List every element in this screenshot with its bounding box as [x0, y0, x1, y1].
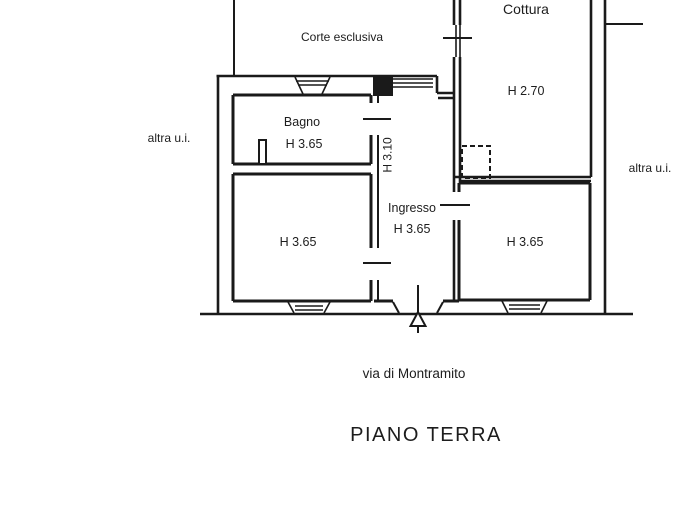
wall-pier	[373, 76, 393, 96]
room-label-bagno: Bagno	[272, 116, 332, 130]
outdoor-label-corte-esclusiva: Corte esclusiva	[301, 31, 381, 44]
street-label: via di Montramito	[344, 367, 484, 382]
room-cottura-walls	[454, 0, 591, 301]
boundary-lines	[234, 0, 643, 76]
scanned-floorplan-page: { "page": { "background": "#ffffff", "li…	[0, 0, 700, 525]
height-label-left-room: H 3.65	[266, 236, 330, 250]
outer-walls	[217, 0, 606, 314]
height-label-corridor: H 3.10	[381, 137, 394, 172]
window-symbols	[288, 25, 547, 313]
room-label-cottura: Cottura	[490, 2, 562, 17]
entrance-arrow	[411, 285, 426, 333]
height-label-cottura: H 2.70	[490, 85, 562, 99]
dashed-fixture	[462, 146, 490, 178]
height-label-right-room: H 3.65	[493, 236, 557, 250]
outdoor-label-altra-ui-left: altra u.i.	[139, 132, 199, 145]
bagno-partition-stub	[259, 140, 266, 164]
height-label-ingresso: H 3.65	[381, 223, 443, 237]
room-label-ingresso: Ingresso	[381, 202, 443, 216]
floor-title: PIANO TERRA	[326, 424, 526, 446]
floor-plan-drawing	[0, 0, 700, 525]
outdoor-label-altra-ui-right: altra u.i.	[619, 162, 681, 175]
height-label-bagno: H 3.65	[272, 138, 336, 152]
